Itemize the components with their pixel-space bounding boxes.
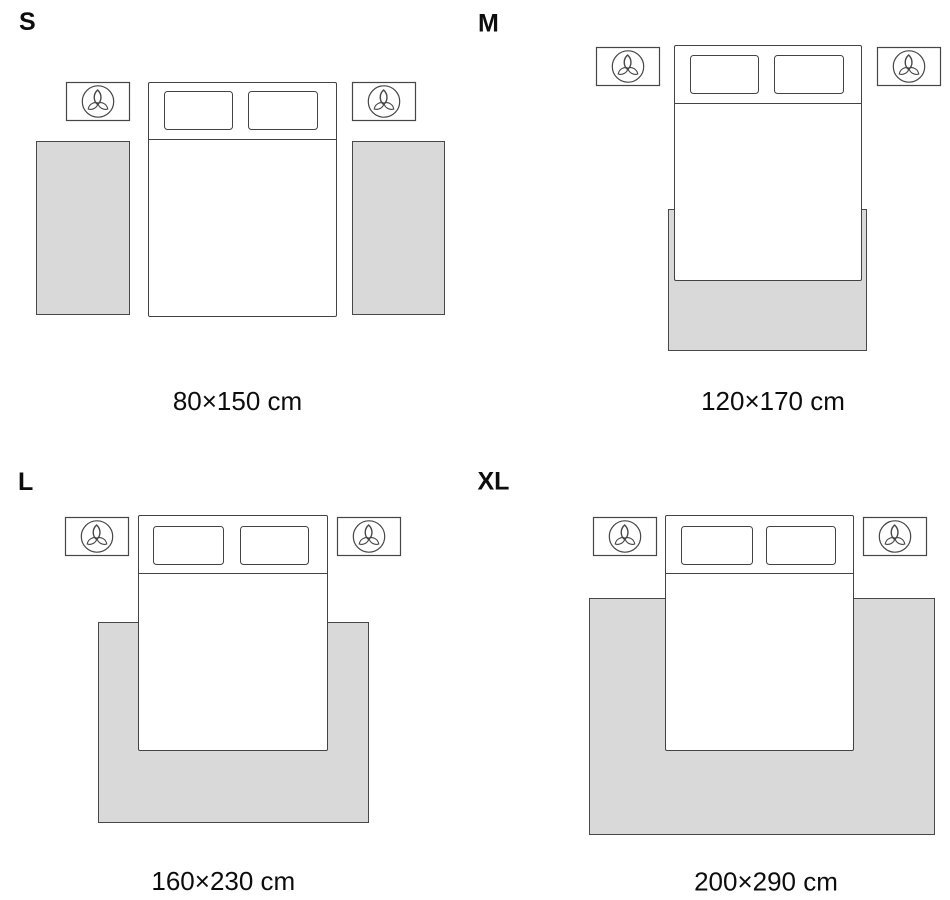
svg-text:200×290 cm: 200×290 cm <box>694 867 838 897</box>
svg-text:160×230 cm: 160×230 cm <box>151 866 295 896</box>
svg-text:120×170 cm: 120×170 cm <box>701 386 845 416</box>
svg-text:L: L <box>18 468 33 496</box>
svg-text:XL: XL <box>478 468 510 496</box>
svg-text:M: M <box>478 10 499 38</box>
svg-text:80×150 cm: 80×150 cm <box>173 386 302 416</box>
svg-text:S: S <box>19 8 36 36</box>
